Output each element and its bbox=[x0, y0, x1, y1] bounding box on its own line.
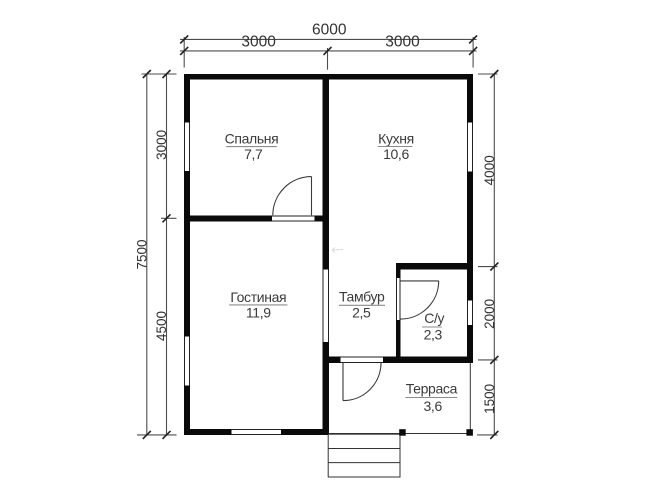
svg-text:2,5: 2,5 bbox=[352, 305, 371, 321]
svg-text:7500: 7500 bbox=[134, 239, 149, 269]
svg-text:3,6: 3,6 bbox=[423, 398, 442, 414]
svg-text:11,9: 11,9 bbox=[246, 304, 271, 320]
svg-text:2,3: 2,3 bbox=[424, 327, 443, 343]
svg-text:10,6: 10,6 bbox=[383, 146, 409, 162]
svg-text:4500: 4500 bbox=[154, 311, 169, 341]
svg-text:2000: 2000 bbox=[482, 299, 497, 329]
svg-text:6000: 6000 bbox=[312, 22, 347, 39]
svg-text:Тамбур: Тамбур bbox=[339, 289, 385, 305]
svg-text:1500: 1500 bbox=[482, 384, 497, 414]
svg-text:4000: 4000 bbox=[482, 155, 497, 185]
svg-text:3000: 3000 bbox=[241, 33, 276, 50]
svg-text:Спальня: Спальня bbox=[225, 131, 279, 147]
svg-text:7,7: 7,7 bbox=[244, 146, 263, 162]
svg-text:Терраса: Терраса bbox=[406, 381, 458, 397]
svg-text:3000: 3000 bbox=[154, 130, 169, 160]
svg-text:Гостиная: Гостиная bbox=[230, 289, 286, 305]
svg-text:3000: 3000 bbox=[385, 33, 420, 50]
svg-text:Кухня: Кухня bbox=[378, 131, 414, 147]
svg-text:С/у: С/у bbox=[424, 310, 444, 326]
